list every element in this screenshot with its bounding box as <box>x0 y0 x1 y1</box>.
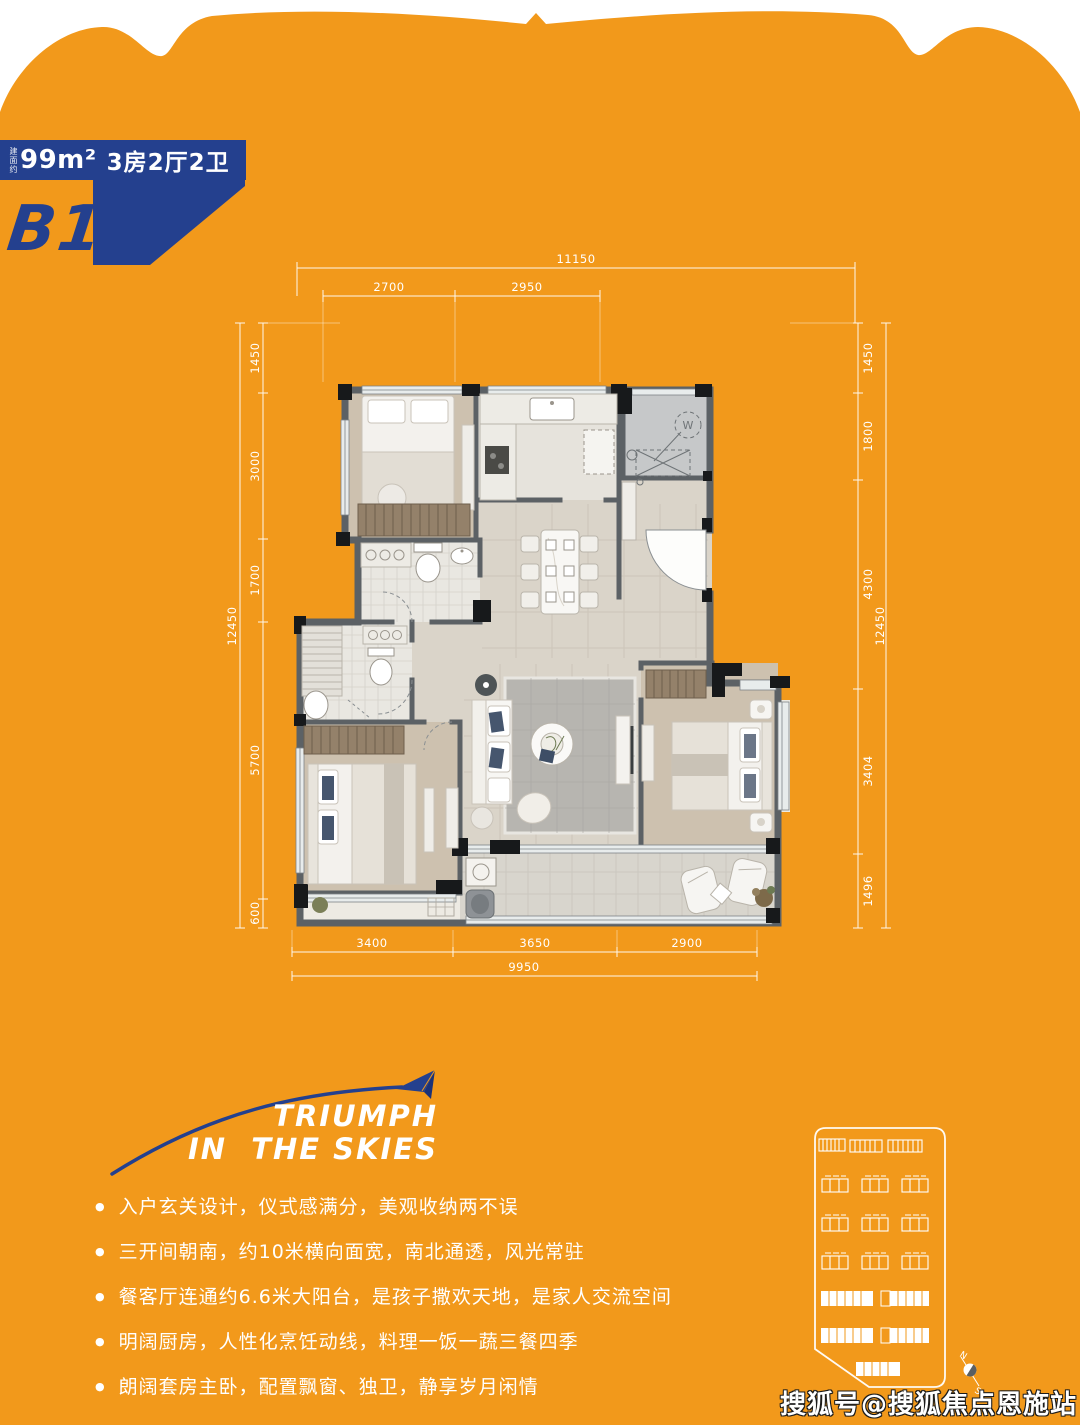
unit-badge-banner: 建面约 99m² 3房2厅2卫 <box>0 140 246 180</box>
slogan: TRIUMPH IN THE SKIES <box>95 1100 438 1166</box>
dim-left-seg: 600 <box>248 901 262 924</box>
dim-left-overall: 12450 <box>225 606 239 645</box>
slogan-line1: TRIUMPH <box>95 1100 438 1133</box>
layout-value: 3房2厅2卫 <box>107 143 230 177</box>
feature-item: 入户玄关设计，仪式感满分，美观收纳两不误 <box>95 1192 672 1219</box>
siteplan <box>815 1128 945 1387</box>
feature-item: 三开间朝南，约10米横向面宽，南北通透，风光常驻 <box>95 1237 672 1264</box>
dim-top-overall: 11150 <box>556 252 595 266</box>
slogan-line2: IN THE SKIES <box>95 1133 438 1166</box>
dim-right-seg: 4300 <box>861 568 875 599</box>
dim-top-seg: 2950 <box>511 280 542 294</box>
dim-left-seg: 1450 <box>248 342 262 373</box>
washer-label: W <box>683 419 694 432</box>
siteplan-buildings <box>819 1139 928 1269</box>
feature-item: 朗阔套房主卧，配置飘窗、独卫，静享岁月闲情 <box>95 1372 672 1399</box>
dim-left-seg: 5700 <box>248 744 262 775</box>
dim-bottom-seg: 3400 <box>356 936 387 950</box>
dim-right-seg: 1800 <box>861 420 875 451</box>
dining-set <box>521 530 598 614</box>
dim-right-seg: 1450 <box>861 342 875 373</box>
dim-bottom-seg: 3650 <box>519 936 550 950</box>
badge-wedge <box>93 180 245 265</box>
dim-right-seg: 3404 <box>861 755 875 786</box>
area-value: 99m² <box>20 145 97 175</box>
unit-code: B1 <box>4 192 109 265</box>
dim-bottom-seg: 2900 <box>671 936 702 950</box>
dim-right-seg: 1496 <box>861 875 875 906</box>
dim-bottom-overall: 9950 <box>508 960 539 974</box>
feature-item: 餐客厅连通约6.6米大阳台，是孩子撒欢天地，是家人交流空间 <box>95 1282 672 1309</box>
poster: W <box>0 0 1080 1425</box>
feature-item: 明阔厨房，人性化烹饪动线，料理一饭一蔬三餐四季 <box>95 1327 672 1354</box>
dim-top-seg: 2700 <box>373 280 404 294</box>
dim-left-seg: 1700 <box>248 564 262 595</box>
dim-left-seg: 3000 <box>248 450 262 481</box>
watermark: 搜狐号@搜狐焦点恩施站 <box>780 1384 1077 1421</box>
feature-list: 入户玄关设计，仪式感满分，美观收纳两不误 三开间朝南，约10米横向面宽，南北通透… <box>95 1192 672 1417</box>
foyer-cabinet <box>622 482 636 540</box>
compass-n-label: N <box>957 1350 968 1362</box>
area-prefix-label: 建面约 <box>9 147 17 174</box>
siteplan-buildings-highlight <box>821 1291 929 1376</box>
dim-right-overall: 12450 <box>873 606 887 645</box>
